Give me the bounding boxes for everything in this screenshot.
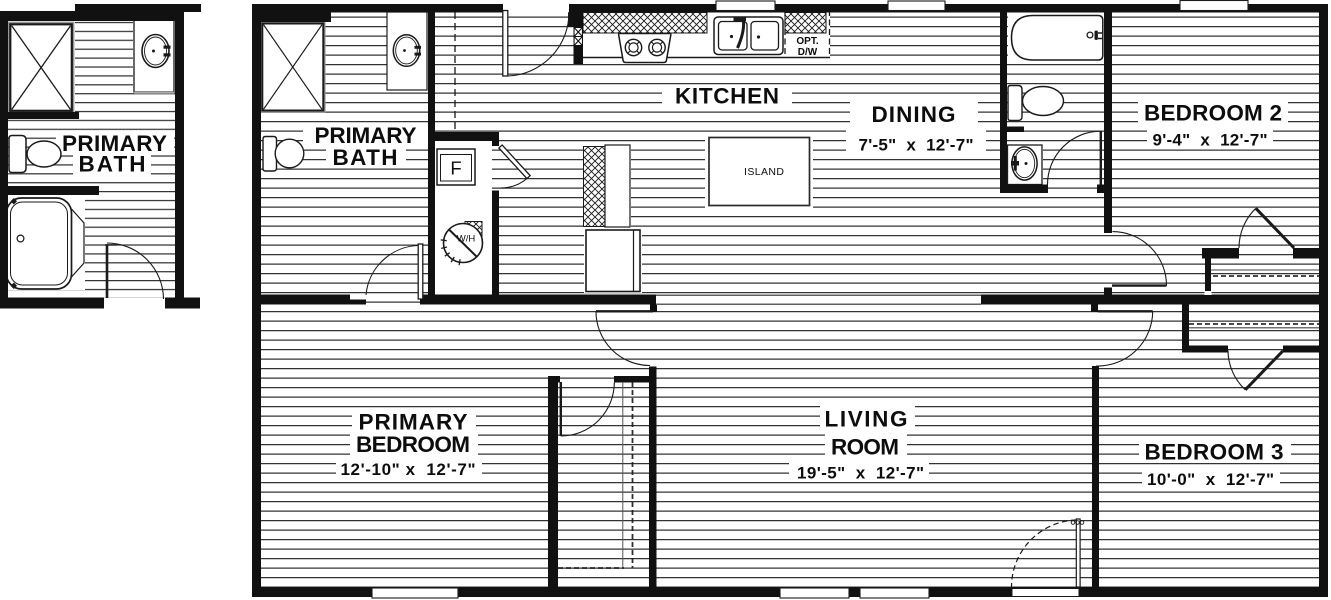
svg-text:9'-4" x 12'-7": 9'-4" x 12'-7" <box>1153 131 1268 150</box>
svg-text:ROOM: ROOM <box>831 435 899 460</box>
svg-text:BEDROOM 3: BEDROOM 3 <box>1145 440 1284 465</box>
svg-text:BEDROOM: BEDROOM <box>356 432 470 457</box>
svg-text:10'-0" x 12'-7": 10'-0" x 12'-7" <box>1147 470 1274 489</box>
svg-text:D/W: D/W <box>798 47 818 58</box>
svg-text:19'-5" x 12'-7": 19'-5" x 12'-7" <box>797 464 924 483</box>
svg-text:BEDROOM 2: BEDROOM 2 <box>1144 101 1282 126</box>
svg-text:F: F <box>450 158 461 179</box>
svg-text:LIVING: LIVING <box>825 407 908 432</box>
svg-text:PRIMARY: PRIMARY <box>359 410 468 435</box>
svg-text:OPT.: OPT. <box>796 36 818 47</box>
svg-text:12'-10" x 12'-7": 12'-10" x 12'-7" <box>341 460 476 479</box>
svg-text:W/H: W/H <box>457 234 476 245</box>
svg-text:DINING: DINING <box>872 102 956 127</box>
svg-text:7'-5" x 12'-7": 7'-5" x 12'-7" <box>859 136 974 155</box>
svg-text:KITCHEN: KITCHEN <box>675 84 779 109</box>
svg-text:ISLAND: ISLAND <box>744 166 784 178</box>
